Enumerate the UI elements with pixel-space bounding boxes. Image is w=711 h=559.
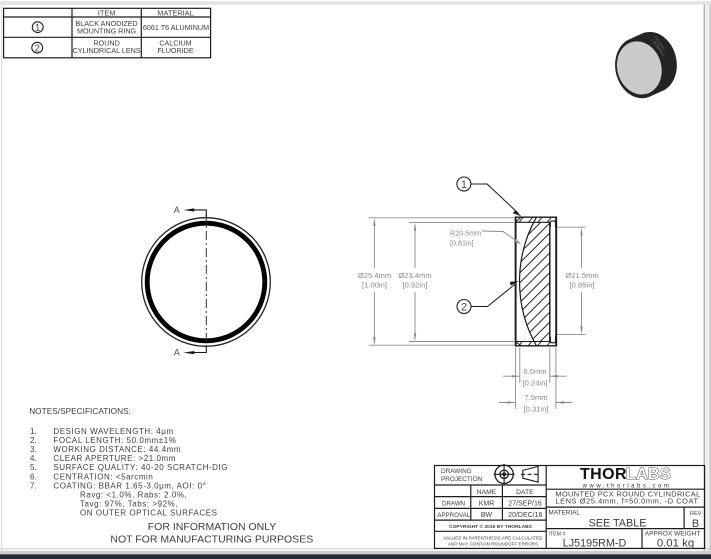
- svg-text:2: 2: [461, 302, 467, 314]
- svg-text:5.: 5.: [30, 463, 37, 472]
- svg-text:SEE TABLE: SEE TABLE: [589, 517, 647, 529]
- svg-text:ITEM: ITEM: [98, 8, 116, 17]
- svg-text:[0.31in]: [0.31in]: [524, 405, 549, 414]
- svg-text:A: A: [174, 205, 180, 215]
- svg-text:KMR: KMR: [479, 501, 495, 508]
- svg-text:LABS: LABS: [626, 466, 671, 483]
- svg-text:NAME: NAME: [477, 489, 497, 496]
- svg-text:7.9mm: 7.9mm: [524, 393, 547, 402]
- svg-text:[1.00in]: [1.00in]: [362, 280, 387, 289]
- svg-text:[0.85in]: [0.85in]: [570, 280, 595, 289]
- svg-text:2: 2: [34, 44, 40, 55]
- svg-text:0.01 kg: 0.01 kg: [657, 538, 694, 550]
- svg-text:Tavg: 97%, Tabs: >92%,: Tavg: 97%, Tabs: >92%,: [80, 500, 178, 509]
- svg-text:WORKING DISTANCE: 44.4mm: WORKING DISTANCE: 44.4mm: [53, 445, 181, 454]
- svg-text:FOR INFORMATION ONLY: FOR INFORMATION ONLY: [148, 521, 277, 533]
- svg-text:NOTES/SPECIFICATIONS:: NOTES/SPECIFICATIONS:: [29, 406, 131, 416]
- svg-text:APPROVAL: APPROVAL: [437, 512, 470, 519]
- svg-text:APPROX WEIGHT: APPROX WEIGHT: [645, 530, 701, 537]
- svg-text:1: 1: [461, 179, 467, 191]
- svg-text:DESIGN WAVELENGTH: 4μm: DESIGN WAVELENGTH: 4μm: [53, 427, 173, 436]
- svg-text:MATERIAL: MATERIAL: [549, 509, 581, 516]
- svg-text:ITEM #: ITEM #: [549, 531, 566, 537]
- svg-text:6.0mm: 6.0mm: [523, 367, 546, 376]
- svg-text:ON OUTER OPTICAL SURFACES: ON OUTER OPTICAL SURFACES: [80, 509, 217, 518]
- svg-text:CENTRATION: <5arcmin: CENTRATION: <5arcmin: [53, 472, 153, 481]
- svg-text:4.: 4.: [30, 454, 37, 463]
- svg-text:THOR: THOR: [580, 466, 627, 483]
- svg-text:1: 1: [35, 23, 41, 34]
- svg-text:CLEAR APERTURE: >21.0mm: CLEAR APERTURE: >21.0mm: [53, 454, 176, 463]
- svg-text:6061 T6 ALUMINUM: 6061 T6 ALUMINUM: [143, 23, 209, 32]
- svg-text:A: A: [174, 348, 180, 358]
- svg-text:CYLINDRICAL LENS: CYLINDRICAL LENS: [73, 46, 141, 55]
- svg-text:FLUORIDE: FLUORIDE: [157, 46, 194, 55]
- svg-text:DATE: DATE: [516, 489, 534, 496]
- svg-text:Ø23.4mm: Ø23.4mm: [398, 271, 431, 280]
- svg-text:3.: 3.: [30, 445, 37, 454]
- svg-text:SURFACE QUALITY: 40-20 SCRATCH: SURFACE QUALITY: 40-20 SCRATCH-DIG: [53, 463, 228, 472]
- svg-text:PROJECTION: PROJECTION: [441, 476, 483, 483]
- svg-text:Ø25.4mm: Ø25.4mm: [358, 271, 391, 280]
- svg-text:NOT FOR MANUFACTURING PURPOSES: NOT FOR MANUFACTURING PURPOSES: [110, 534, 313, 546]
- svg-text:[0.92in]: [0.92in]: [403, 280, 428, 289]
- svg-text:Ravg: <1.0%, Rabs: 2.0%,: Ravg: <1.0%, Rabs: 2.0%,: [80, 491, 187, 500]
- svg-text:MOUNTING RING: MOUNTING RING: [77, 26, 137, 35]
- svg-text:COATING: BBAR 1.65-3.0μm, AOI:: COATING: BBAR 1.65-3.0μm, AOI: 0°: [53, 481, 206, 490]
- svg-text:B: B: [692, 518, 699, 530]
- svg-text:R20.5mm: R20.5mm: [450, 228, 481, 237]
- svg-text:[0.24in]: [0.24in]: [523, 379, 548, 388]
- svg-text:2.: 2.: [30, 436, 37, 445]
- svg-text:BW: BW: [481, 512, 493, 519]
- svg-text:LENS Ø25.4mm, f=50.0mm, -D COA: LENS Ø25.4mm, f=50.0mm, -D COAT: [555, 497, 698, 506]
- svg-text:7.: 7.: [30, 481, 37, 490]
- svg-text:DRAWN: DRAWN: [442, 501, 465, 508]
- svg-text:REV: REV: [690, 511, 702, 517]
- svg-text:27/SEP/16: 27/SEP/16: [508, 501, 542, 508]
- svg-text:Ø21.5mm: Ø21.5mm: [565, 271, 598, 280]
- svg-text:DRAWING: DRAWING: [441, 468, 472, 475]
- svg-text:1.: 1.: [30, 427, 37, 436]
- svg-text:6.: 6.: [30, 472, 37, 481]
- svg-text:VALUES IN PARENTHESIS ARE CALC: VALUES IN PARENTHESIS ARE CALCULATED: [444, 535, 543, 540]
- svg-text:MATERIAL: MATERIAL: [157, 8, 193, 17]
- svg-text:[0.81in]: [0.81in]: [450, 238, 474, 247]
- svg-text:LJ5195RM-D: LJ5195RM-D: [563, 538, 627, 550]
- svg-text:COPYRIGHT © 2016 BY THORLABS: COPYRIGHT © 2016 BY THORLABS: [449, 523, 533, 530]
- svg-text:AND MAY CONTAIN ROUNDOFF ERROR: AND MAY CONTAIN ROUNDOFF ERRORS: [448, 541, 538, 546]
- svg-text:20/DEC/16: 20/DEC/16: [508, 512, 542, 519]
- svg-text:FOCAL LENGTH: 50.0mm±1%: FOCAL LENGTH: 50.0mm±1%: [53, 436, 176, 445]
